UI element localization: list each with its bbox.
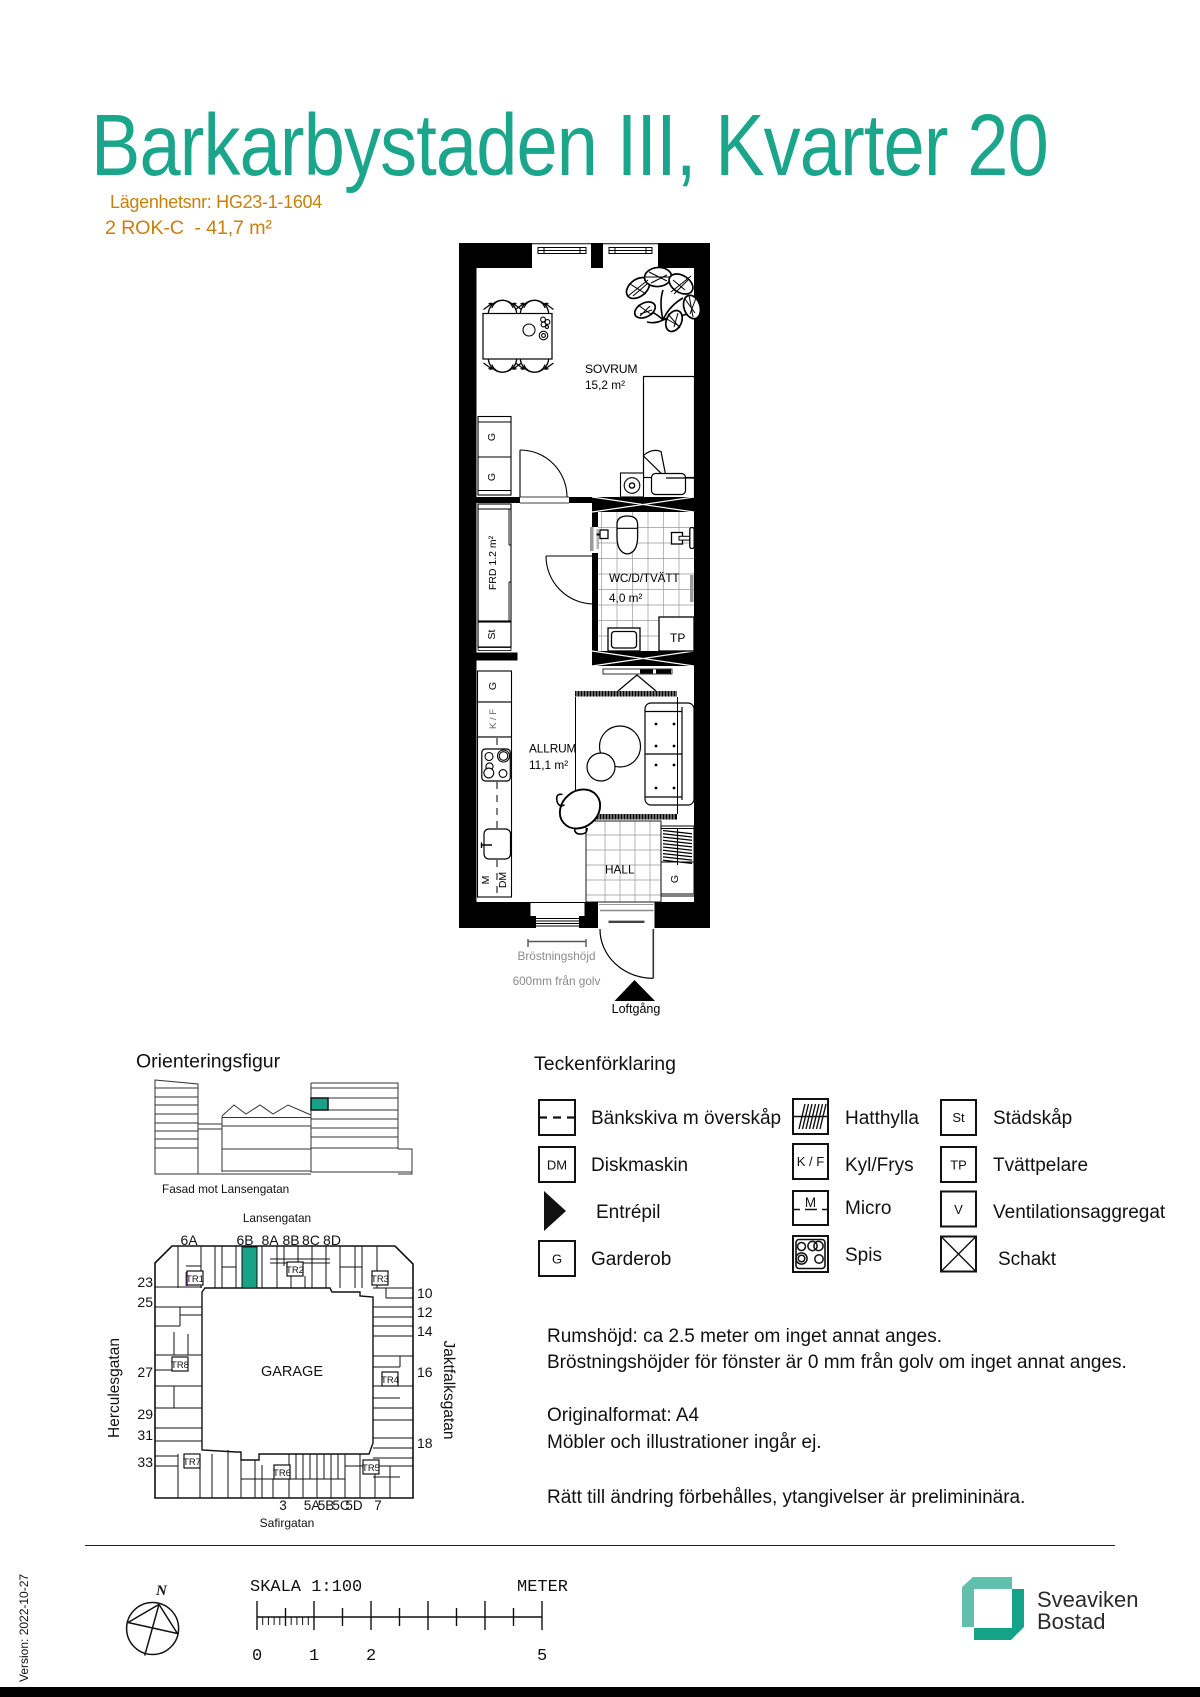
svg-text:Hatthylla: Hatthylla	[845, 1108, 919, 1129]
svg-text:DM: DM	[497, 872, 509, 888]
svg-text:DM: DM	[547, 1158, 567, 1173]
svg-text:7: 7	[374, 1498, 382, 1513]
svg-text:Loftgång: Loftgång	[612, 1002, 661, 1016]
svg-text:Entrépil: Entrépil	[596, 1202, 660, 1223]
svg-text:Lansengatan: Lansengatan	[243, 1211, 311, 1225]
svg-text:12: 12	[417, 1304, 433, 1320]
svg-text:K / F: K / F	[797, 1154, 825, 1169]
svg-text:Fasad mot Lansengatan: Fasad mot Lansengatan	[162, 1182, 289, 1196]
svg-text:SKALA 1:100: SKALA 1:100	[250, 1578, 362, 1597]
svg-text:TR4: TR4	[381, 1375, 399, 1386]
svg-text:G: G	[487, 682, 499, 690]
svg-text:Schakt: Schakt	[998, 1249, 1057, 1270]
svg-text:6B: 6B	[236, 1232, 253, 1248]
svg-text:Bostad: Bostad	[1037, 1609, 1106, 1634]
svg-text:FRD 1.2 m²: FRD 1.2 m²	[487, 535, 499, 590]
svg-text:WC/D/TVÄTT: WC/D/TVÄTT	[609, 572, 679, 585]
svg-text:10: 10	[417, 1285, 433, 1301]
svg-text:TR6: TR6	[273, 1468, 291, 1479]
svg-text:Garderob: Garderob	[591, 1249, 671, 1270]
svg-text:St: St	[486, 629, 498, 639]
svg-text:TP: TP	[670, 631, 685, 645]
svg-text:18: 18	[417, 1435, 433, 1451]
svg-text:TR7: TR7	[183, 1457, 201, 1468]
svg-text:G: G	[669, 875, 681, 883]
svg-text:G: G	[486, 473, 498, 481]
svg-text:2: 2	[366, 1647, 376, 1666]
svg-text:33: 33	[137, 1454, 153, 1470]
svg-text:15,2 m²: 15,2 m²	[585, 378, 625, 392]
svg-text:M: M	[480, 876, 492, 885]
svg-text:TR5: TR5	[362, 1463, 380, 1474]
svg-text:G: G	[486, 433, 498, 441]
svg-text:14: 14	[417, 1323, 433, 1339]
svg-text:8D: 8D	[323, 1232, 341, 1248]
svg-text:Städskåp: Städskåp	[993, 1108, 1072, 1129]
svg-text:6A: 6A	[180, 1232, 198, 1248]
svg-text:25: 25	[137, 1294, 153, 1310]
svg-text:8B: 8B	[282, 1232, 299, 1248]
svg-text:St: St	[952, 1110, 965, 1125]
svg-text:Teckenförklaring: Teckenförklaring	[534, 1053, 676, 1075]
svg-text:TR8: TR8	[171, 1360, 189, 1371]
svg-text:Safirgatan: Safirgatan	[260, 1516, 315, 1530]
svg-text:3: 3	[279, 1498, 287, 1513]
svg-text:K / F: K / F	[488, 709, 499, 729]
svg-text:Spis: Spis	[845, 1245, 882, 1266]
svg-text:5: 5	[537, 1647, 547, 1666]
svg-text:N: N	[155, 1583, 168, 1599]
svg-text:GARAGE: GARAGE	[261, 1364, 323, 1380]
svg-text:TR2: TR2	[286, 1265, 304, 1276]
svg-text:23: 23	[137, 1274, 153, 1290]
svg-text:TR1: TR1	[186, 1274, 204, 1285]
svg-text:600mm från golv: 600mm från golv	[513, 974, 601, 988]
svg-text:Ventilationsaggregat: Ventilationsaggregat	[993, 1202, 1166, 1223]
svg-text:4,0 m²: 4,0 m²	[609, 591, 643, 605]
svg-text:Orienteringsfigur: Orienteringsfigur	[136, 1051, 281, 1073]
svg-text:29: 29	[137, 1406, 153, 1422]
svg-text:Bänkskiva m överskåp: Bänkskiva m överskåp	[591, 1108, 781, 1129]
svg-text:V: V	[954, 1202, 963, 1217]
svg-text:16: 16	[417, 1364, 433, 1380]
svg-text:Micro: Micro	[845, 1198, 891, 1219]
svg-text:M: M	[805, 1195, 816, 1210]
svg-text:Diskmaskin: Diskmaskin	[591, 1155, 688, 1176]
svg-text:G: G	[552, 1252, 562, 1267]
svg-text:0: 0	[252, 1647, 262, 1666]
svg-text:SOVRUM: SOVRUM	[585, 362, 637, 376]
svg-text:Tvättpelare: Tvättpelare	[993, 1155, 1088, 1176]
svg-text:11,1 m²: 11,1 m²	[529, 758, 568, 772]
svg-text:TP: TP	[950, 1158, 967, 1173]
svg-text:31: 31	[137, 1427, 153, 1443]
svg-text:Jaktfalksgatan: Jaktfalksgatan	[440, 1340, 457, 1439]
svg-text:METER: METER	[517, 1578, 568, 1597]
svg-text:8C: 8C	[302, 1232, 320, 1248]
svg-text:8A: 8A	[261, 1232, 279, 1248]
svg-text:27: 27	[137, 1364, 153, 1380]
svg-text:Kyl/Frys: Kyl/Frys	[845, 1155, 914, 1176]
svg-text:5D: 5D	[345, 1498, 363, 1513]
svg-text:1: 1	[309, 1647, 319, 1666]
svg-text:HALL: HALL	[605, 863, 635, 877]
svg-text:TR3: TR3	[371, 1274, 389, 1285]
svg-text:Bröstningshöjd: Bröstningshöjd	[517, 949, 595, 963]
svg-text:ALLRUM: ALLRUM	[529, 742, 576, 756]
svg-text:Herculesgatan: Herculesgatan	[106, 1338, 123, 1438]
